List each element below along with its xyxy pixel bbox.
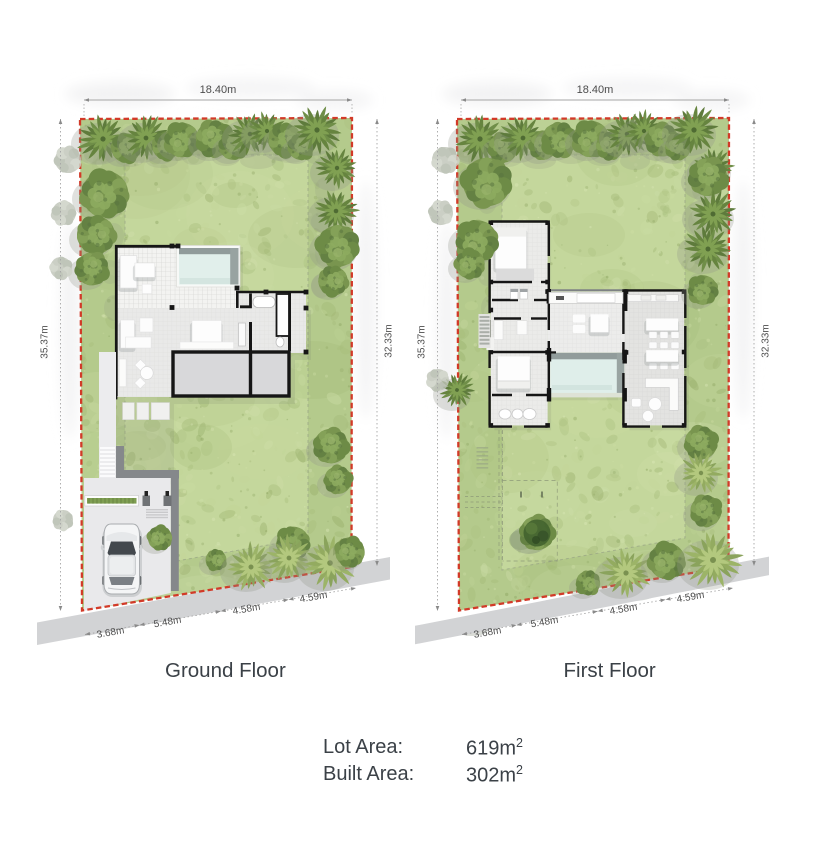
svg-text:32.33m: 32.33m [761,324,772,357]
svg-text:32.33m: 32.33m [384,324,395,357]
svg-text:35.37m: 35.37m [417,325,428,358]
svg-text:35.37m: 35.37m [40,325,51,358]
svg-text:18.40m: 18.40m [577,84,614,96]
svg-text:18.40m: 18.40m [200,84,237,96]
